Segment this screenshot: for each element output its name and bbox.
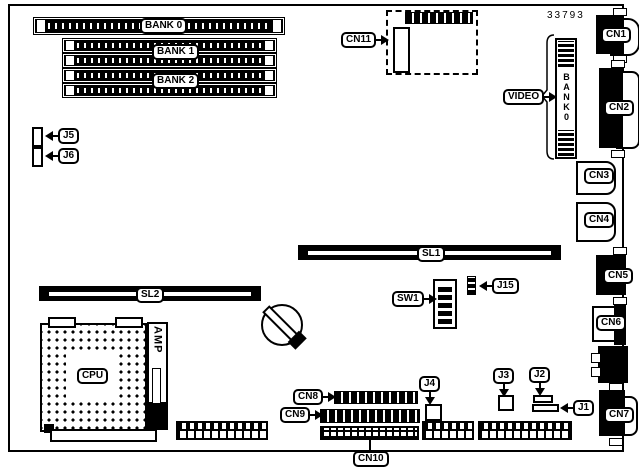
video-slot-pins-bottom (558, 130, 574, 156)
video-slot-pins-top (558, 41, 574, 67)
j6-callout: J6 (45, 148, 79, 164)
cn1-tab-top (613, 8, 627, 16)
j4-callout: J4 (419, 376, 440, 405)
bottom-connector-mid-pins (424, 423, 472, 431)
video-arrow-icon (549, 92, 557, 102)
video-slot: BANK0 (555, 38, 577, 159)
amp-label: AMP (152, 326, 164, 353)
sw1-switch-bank (438, 284, 452, 324)
j4-arrow-icon (425, 397, 435, 405)
cpu-tab-right (115, 317, 143, 328)
bottom-connector-left-sockets (178, 431, 266, 438)
cn7-label: CN7 (604, 407, 634, 423)
bank2-slot-a-clip-left (65, 70, 75, 81)
cn10-pointer-line (369, 438, 371, 451)
j5-arrow-icon (45, 131, 53, 141)
j3-label: J3 (493, 368, 514, 384)
bank2-label: BANK 2 (152, 73, 199, 89)
j3-jumper (498, 395, 514, 411)
sl1-label: SL1 (417, 246, 445, 262)
amp-slot (152, 368, 161, 404)
amp-block (149, 402, 166, 428)
cn5-label: CN5 (603, 268, 633, 284)
cn9-pin-header (320, 409, 420, 423)
cn8-arrow-icon (328, 392, 336, 402)
j4-jumper (425, 404, 442, 421)
video-slot-bank0-text: BANK0 (562, 72, 571, 122)
j15-callout: J15 (479, 278, 519, 294)
sw1-callout: SW1 (392, 291, 437, 307)
cpu-tab-left (48, 317, 76, 328)
cn11-callout: CN11 (341, 32, 389, 48)
bottom-connector-right (478, 421, 572, 440)
cn8-label: CN8 (293, 389, 323, 405)
cpu-center: CPU (66, 350, 119, 402)
j15-arrow-icon (479, 281, 487, 291)
bottom-connector-mid (422, 421, 474, 440)
audio-jack-1 (591, 353, 601, 363)
j1-label: J1 (573, 400, 594, 416)
battery-icon (254, 298, 318, 358)
cn1-label: CN1 (601, 27, 631, 43)
j5-callout: J5 (45, 128, 79, 144)
j6-arrow-icon (45, 151, 53, 161)
j15-jumper (467, 276, 476, 295)
cn11-label: CN11 (341, 32, 376, 48)
bank0-clip-right (272, 19, 282, 33)
bottom-connector-left (176, 421, 268, 440)
sl2-label: SL2 (136, 287, 164, 303)
sw1-arrow-icon (429, 294, 437, 304)
bank1-slot-b-clip-right (264, 55, 274, 66)
bank1-slot-a-clip-right (264, 40, 274, 51)
cn11-arrow-icon (381, 35, 389, 45)
j3-arrow-icon (499, 389, 509, 397)
j1-callout: J1 (560, 400, 594, 416)
bank2-slot-b-clip-left (65, 85, 75, 96)
j4-label: J4 (419, 376, 440, 392)
cn2-tab-top (611, 60, 625, 68)
cn9-label: CN9 (280, 407, 310, 423)
cn10-label: CN10 (353, 451, 389, 467)
cn5-tab-top (613, 247, 627, 255)
j6-label: J6 (58, 148, 79, 164)
j5-jumper (32, 127, 43, 147)
sw1-label: SW1 (392, 291, 424, 307)
cn6-label: CN6 (596, 315, 626, 331)
cn8-callout: CN8 (293, 389, 336, 405)
part-number: 33793 (547, 10, 585, 21)
j1-jumper (532, 404, 559, 412)
cn11-pin-header (405, 12, 473, 24)
j2-arrow-icon (535, 388, 545, 396)
j15-label: J15 (492, 278, 519, 294)
cn2-tab-bottom (611, 150, 625, 158)
cn7-tab-bottom (609, 438, 623, 446)
motherboard-diagram: 33793 BANK 0 BANK 1 BANK 2 CN11 (0, 0, 639, 474)
bank1-label: BANK 1 (152, 44, 199, 60)
cn9-callout: CN9 (280, 407, 323, 423)
bank1-slot-b-clip-left (65, 55, 75, 66)
video-label: VIDEO (503, 89, 544, 105)
j6-jumper (32, 147, 43, 167)
bottom-connector-right-pins (480, 423, 570, 431)
j1-arrow-icon (560, 403, 568, 413)
j2-callout: J2 (529, 367, 550, 396)
j2-jumper (533, 395, 553, 403)
video-callout: VIDEO (503, 89, 557, 105)
bank0-clip-left (36, 19, 46, 33)
cn11-socket (393, 27, 410, 73)
cpu-lever (50, 429, 157, 442)
bottom-connector-mid-sockets (424, 431, 472, 438)
cn7-tab-top (609, 383, 623, 391)
bank1-slot-a-clip-left (65, 40, 75, 51)
cn4-label: CN4 (584, 212, 614, 228)
bank2-slot-b-clip-right (264, 85, 274, 96)
cpu-label: CPU (77, 368, 108, 384)
cn8-pin-header (334, 391, 418, 404)
cn3-label: CN3 (584, 168, 614, 184)
audio-jack-2 (591, 367, 601, 377)
cn2-label: CN2 (604, 100, 634, 116)
j3-callout: J3 (493, 368, 514, 397)
bottom-connector-right-sockets (480, 431, 570, 438)
amp-vrm-module: AMP (147, 322, 168, 430)
cn9-arrow-icon (315, 410, 323, 420)
j5-label: J5 (58, 128, 79, 144)
bank0-label: BANK 0 (140, 18, 187, 34)
bank2-slot-a-clip-right (264, 70, 274, 81)
j2-label: J2 (529, 367, 550, 383)
bottom-connector-left-pins (178, 423, 266, 431)
cn5-tab-bottom (613, 297, 627, 305)
audio-jack-block (598, 346, 628, 383)
